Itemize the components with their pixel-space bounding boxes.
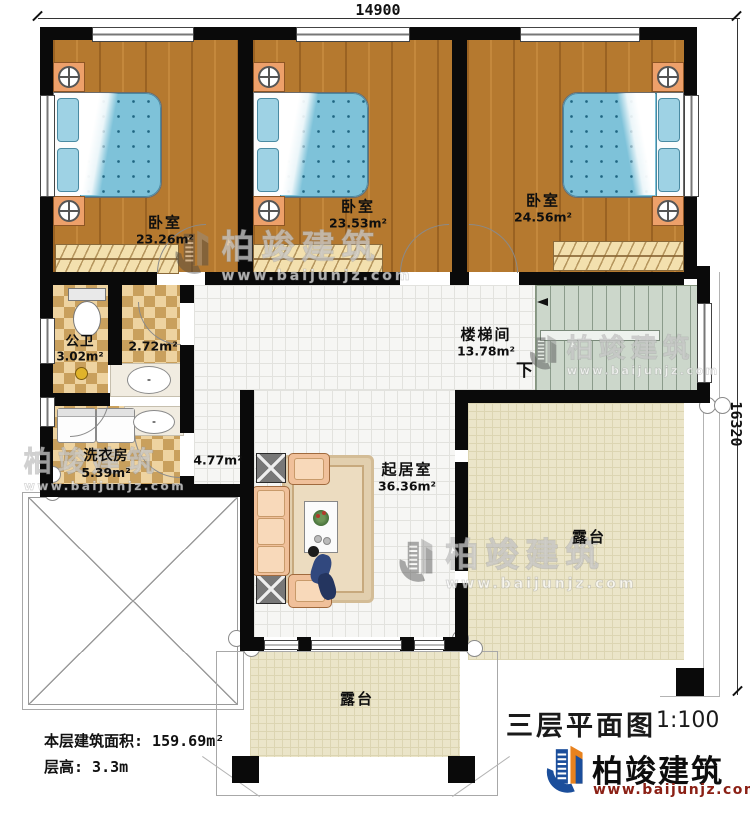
- railing-line: [719, 272, 720, 697]
- wall: [53, 272, 157, 285]
- wall: [180, 285, 194, 303]
- pillar: [232, 756, 259, 783]
- corridor-floor: [194, 390, 240, 484]
- railing-line: [660, 696, 720, 697]
- window: [296, 27, 410, 42]
- wall: [455, 390, 710, 403]
- double-bed: [253, 92, 369, 198]
- lamp-icon: [657, 66, 679, 88]
- sliding-door: [311, 640, 402, 650]
- plan-title: 三层平面图: [506, 704, 656, 743]
- room-name: 楼梯间: [457, 326, 515, 344]
- pillow-icon: [658, 98, 680, 142]
- floor-area-text: 本层建筑面积: 159.69m²: [44, 730, 224, 751]
- pillow-icon: [257, 148, 279, 192]
- wall: [452, 40, 467, 285]
- window: [684, 95, 699, 197]
- room-name: 洗衣房: [81, 448, 130, 465]
- pillow-icon: [57, 98, 79, 142]
- cup-icon: [314, 535, 322, 543]
- bed-sheet: [80, 93, 126, 195]
- room-name: 卧室: [136, 214, 194, 232]
- room-area: 23.26m²: [136, 232, 194, 247]
- wall: [240, 390, 254, 637]
- wall: [108, 285, 122, 365]
- plan-scale: 1:100: [656, 708, 719, 733]
- lamp-icon: [258, 200, 280, 222]
- room-area: 2.72m²: [128, 339, 177, 354]
- room-label-hallway: 4.77m²: [193, 453, 242, 468]
- pillow-icon: [658, 148, 680, 192]
- dimension-label-top: 14900: [355, 1, 400, 19]
- room-name: 起居室: [378, 461, 436, 479]
- roof-outline: [22, 492, 244, 710]
- dimension-tick: [32, 11, 43, 22]
- room-area: 23.53m²: [329, 216, 387, 231]
- room-label-bathroom: 公卫 3.02m²: [56, 334, 103, 365]
- room-area: 24.56m²: [514, 210, 572, 225]
- pillow-icon: [257, 98, 279, 142]
- bed-sheet: [280, 93, 326, 195]
- pillar: [297, 637, 311, 651]
- bed-sheet: [609, 93, 655, 195]
- dimension-line-right: [737, 18, 738, 695]
- floor-plan-canvas: 柏竣建筑 www.baijunjz.com 柏竣建筑 www.baijunjz.…: [0, 0, 750, 814]
- stair-direction-label: 下: [516, 356, 533, 381]
- room-area: 3.02m²: [56, 350, 103, 364]
- nightstand-icon: [253, 196, 285, 226]
- wall: [443, 637, 468, 651]
- lamp-icon: [58, 200, 80, 222]
- brand-logo-icon: [534, 744, 588, 794]
- wall: [180, 476, 194, 497]
- side-table-icon: [256, 574, 286, 604]
- window: [40, 95, 55, 197]
- pillar: [400, 637, 414, 651]
- stair-landing-rail: [540, 330, 660, 341]
- column-base: [466, 640, 483, 657]
- double-bed: [562, 92, 684, 198]
- room-area: 36.36m²: [378, 479, 436, 494]
- sofa-icon: [252, 486, 290, 576]
- sink-icon: [127, 366, 171, 394]
- room-label-bedroom1: 卧室 23.26m²: [136, 214, 194, 247]
- side-table-icon: [256, 453, 286, 483]
- plant-icon: [313, 510, 329, 526]
- sliding-door: [264, 640, 299, 650]
- person-figure: [306, 546, 340, 602]
- pillar: [676, 668, 704, 696]
- lamp-icon: [58, 66, 80, 88]
- double-bed: [53, 92, 162, 198]
- nightstand-icon: [652, 196, 684, 226]
- room-label-laundry: 洗衣房 5.39m²: [81, 448, 130, 480]
- cushion: [257, 546, 285, 573]
- wall: [205, 272, 400, 285]
- toilet-icon: [68, 288, 104, 338]
- pillow-icon: [57, 148, 79, 192]
- room-label-bedroom2: 卧室 23.53m²: [329, 198, 387, 231]
- sink-icon: [133, 410, 175, 434]
- room-label-bedroom3: 卧室 24.56m²: [514, 192, 572, 225]
- room-area: 5.39m²: [81, 465, 130, 480]
- cup-icon: [323, 537, 331, 545]
- room-name: 公卫: [56, 334, 103, 350]
- floor-height-text: 层高: 3.3m: [44, 756, 128, 777]
- cushion: [294, 458, 324, 480]
- window: [92, 27, 194, 42]
- lamp-icon: [258, 66, 280, 88]
- room-name: 露台: [572, 528, 606, 546]
- room-label-terrace-bottom: 露台: [340, 690, 374, 708]
- wall: [450, 272, 469, 285]
- dimension-label-right: 16320: [727, 401, 745, 446]
- wardrobe-icon: [553, 241, 684, 271]
- wall: [519, 272, 684, 285]
- wall: [180, 345, 194, 433]
- sliding-door: [414, 640, 445, 650]
- room-area: 13.78m²: [457, 344, 515, 359]
- window: [520, 27, 640, 42]
- room-label-living: 起居室 36.36m²: [378, 461, 436, 494]
- pillar: [448, 756, 475, 783]
- room-name: 露台: [340, 690, 374, 708]
- armchair-icon: [288, 453, 330, 485]
- window: [40, 397, 55, 427]
- nightstand-icon: [53, 62, 85, 92]
- room-name: 卧室: [514, 192, 572, 210]
- wall: [455, 462, 468, 571]
- room-label-closet: 2.72m²: [128, 339, 177, 354]
- wall: [240, 637, 264, 651]
- room-label-terrace-right: 露台: [572, 528, 606, 546]
- wall: [455, 403, 468, 450]
- room-name: 卧室: [329, 198, 387, 216]
- wall: [238, 40, 253, 285]
- stair-direction-arrow: [537, 298, 548, 306]
- door-knob-icon: [75, 367, 88, 380]
- cushion: [257, 518, 285, 545]
- room-area: 4.77m²: [193, 453, 242, 468]
- flower-icon: [322, 511, 326, 515]
- cushion: [257, 490, 285, 517]
- nightstand-icon: [253, 62, 285, 92]
- window: [40, 318, 55, 364]
- wall: [40, 484, 254, 497]
- brand-url: www.baijunjz.com: [593, 782, 750, 798]
- window: [697, 303, 712, 383]
- room-label-stairwell: 楼梯间 13.78m²: [457, 326, 515, 359]
- nightstand-icon: [53, 196, 85, 226]
- nightstand-icon: [652, 62, 684, 92]
- wardrobe-icon: [253, 244, 383, 274]
- flower-icon: [316, 514, 320, 518]
- lamp-icon: [657, 200, 679, 222]
